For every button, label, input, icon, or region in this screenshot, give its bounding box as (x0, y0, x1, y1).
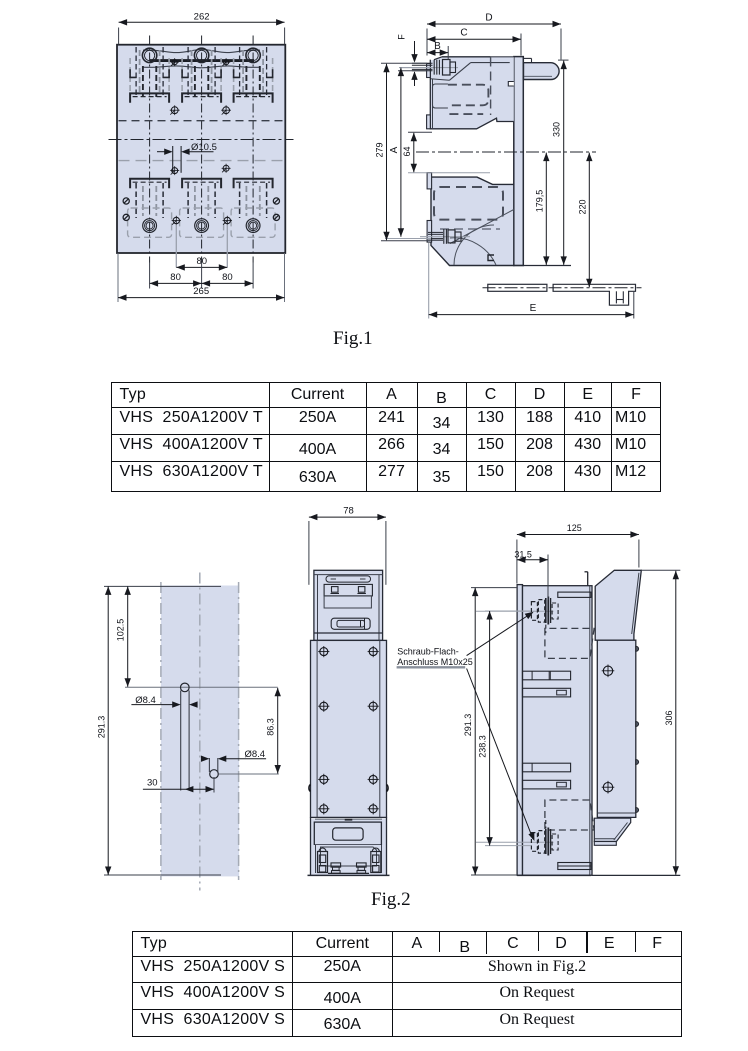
svg-text:102.5: 102.5 (116, 619, 126, 642)
svg-text:Anschluss M10x25: Anschluss M10x25 (397, 657, 473, 667)
svg-text:125: 125 (567, 523, 582, 533)
svg-text:78: 78 (343, 506, 354, 517)
svg-text:86.3: 86.3 (266, 718, 276, 736)
svg-text:30: 30 (147, 778, 158, 789)
svg-text:306: 306 (664, 710, 674, 725)
svg-text:Schraub-Flach-: Schraub-Flach- (397, 647, 459, 657)
svg-text:238.3: 238.3 (478, 735, 488, 758)
svg-text:291.3: 291.3 (463, 714, 473, 737)
svg-text:291.3: 291.3 (96, 716, 106, 739)
